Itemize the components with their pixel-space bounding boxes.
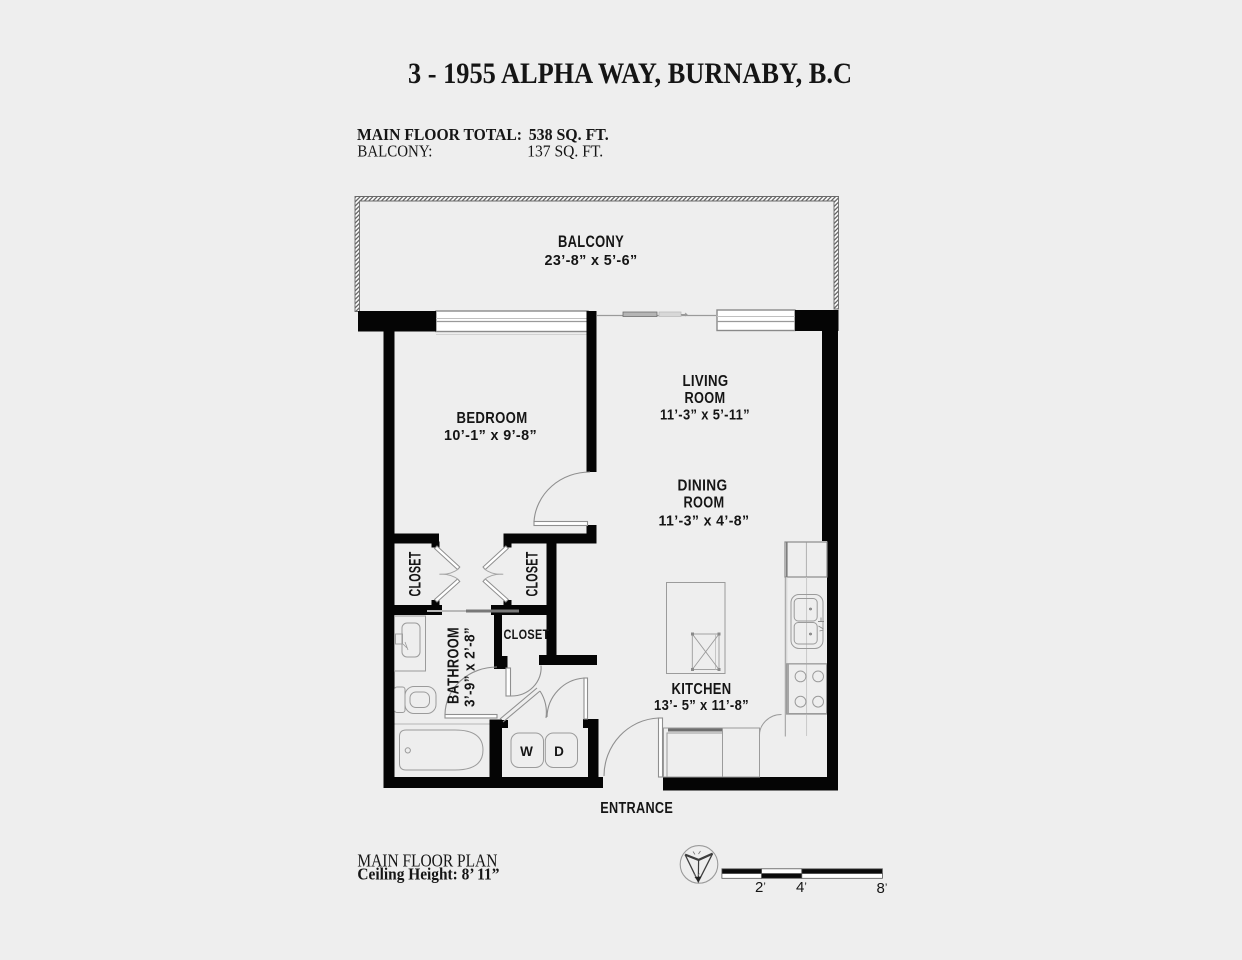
svg-text:137 SQ. FT.: 137 SQ. FT. bbox=[527, 142, 603, 161]
svg-text:LIVING: LIVING bbox=[683, 373, 729, 390]
svg-text:ENTRANCE: ENTRANCE bbox=[600, 800, 673, 817]
svg-text:BALCONY:: BALCONY: bbox=[357, 142, 432, 161]
svg-text:W: W bbox=[520, 744, 533, 759]
svg-text:BEDROOM: BEDROOM bbox=[457, 410, 528, 427]
svg-text:CLOSET: CLOSET bbox=[407, 552, 425, 597]
svg-text:23’-8” x 5’-6”: 23’-8” x 5’-6” bbox=[545, 252, 638, 269]
svg-text:DINING: DINING bbox=[678, 478, 728, 495]
svg-text:8’: 8’ bbox=[877, 880, 888, 897]
svg-text:3 - 1955 ALPHA WAY, BURNABY, B: 3 - 1955 ALPHA WAY, BURNABY, B.C bbox=[408, 57, 852, 90]
svg-text:KITCHEN: KITCHEN bbox=[672, 681, 732, 698]
svg-text:CLOSET: CLOSET bbox=[504, 626, 550, 642]
svg-text:ROOM: ROOM bbox=[685, 390, 726, 407]
svg-text:BATHROOM: BATHROOM bbox=[446, 627, 463, 704]
svg-text:13’- 5” x 11’-8”: 13’- 5” x 11’-8” bbox=[654, 697, 749, 714]
svg-text:2’: 2’ bbox=[755, 879, 766, 896]
svg-text:BALCONY: BALCONY bbox=[558, 232, 624, 251]
svg-text:Ceiling Height: 8’ 11”: Ceiling Height: 8’ 11” bbox=[357, 865, 499, 884]
svg-text:ROOM: ROOM bbox=[684, 495, 725, 512]
svg-text:CLOSET: CLOSET bbox=[524, 552, 542, 597]
svg-text:D: D bbox=[554, 744, 564, 759]
svg-text:3’-9” x 2’-8”: 3’-9” x 2’-8” bbox=[462, 627, 479, 707]
svg-text:10’-1” x 9’-8”: 10’-1” x 9’-8” bbox=[444, 427, 537, 444]
svg-text:11’-3” x 5’-11”: 11’-3” x 5’-11” bbox=[660, 407, 750, 424]
svg-text:4’: 4’ bbox=[796, 879, 807, 896]
svg-text:11’-3” x 4’-8”: 11’-3” x 4’-8” bbox=[659, 513, 750, 530]
